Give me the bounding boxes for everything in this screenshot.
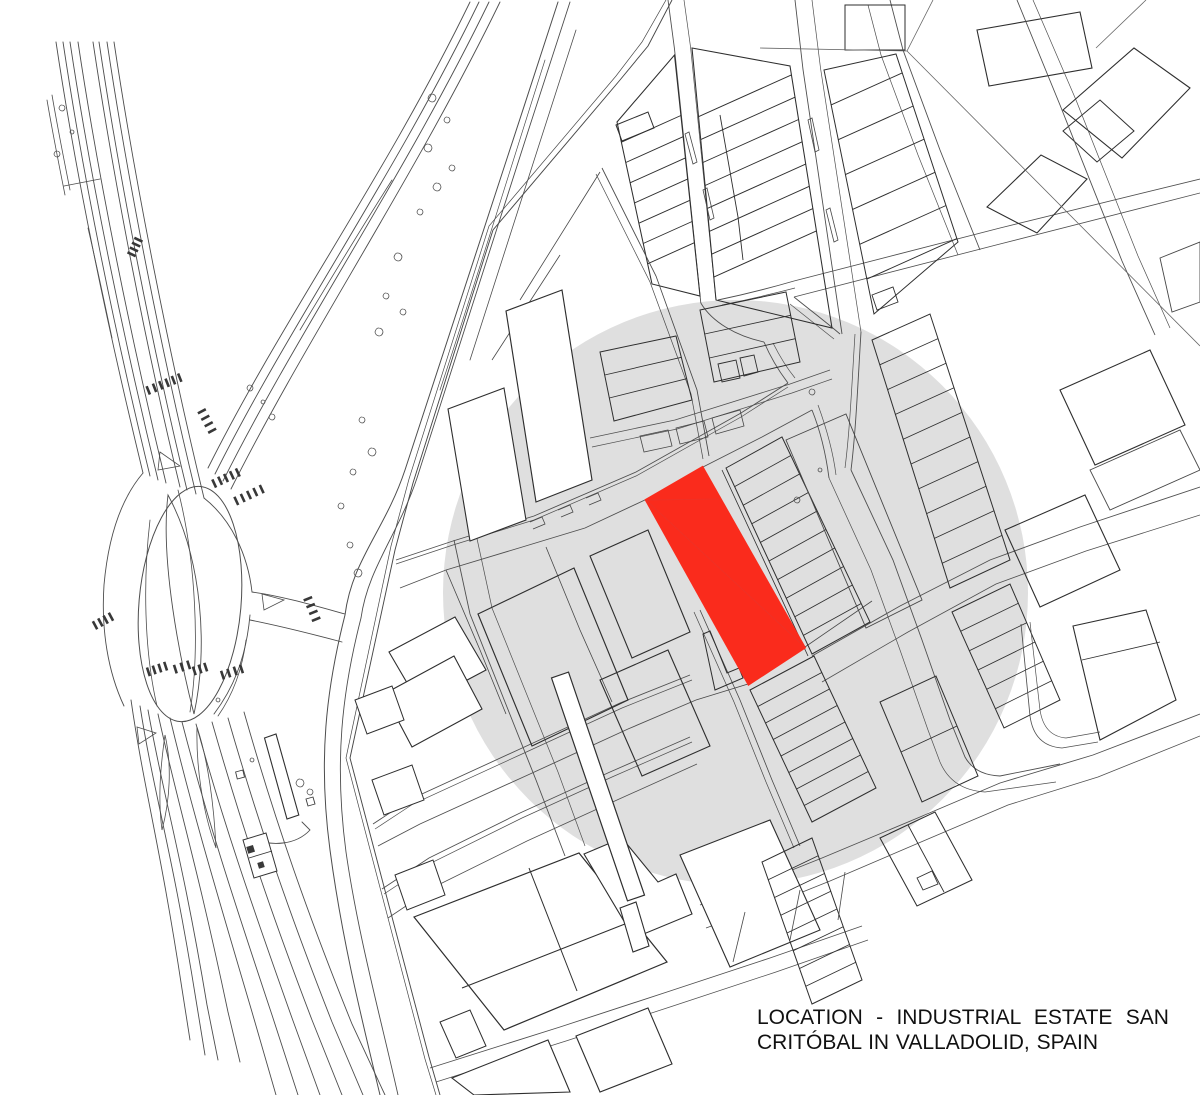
svg-text:CRITÓBAL IN VALLADOLID, SPAIN: CRITÓBAL IN VALLADOLID, SPAIN: [757, 1031, 1098, 1054]
svg-text:LOCATION - INDUSTRIAL ESTATE S: LOCATION - INDUSTRIAL ESTATE SAN: [757, 1006, 1169, 1029]
